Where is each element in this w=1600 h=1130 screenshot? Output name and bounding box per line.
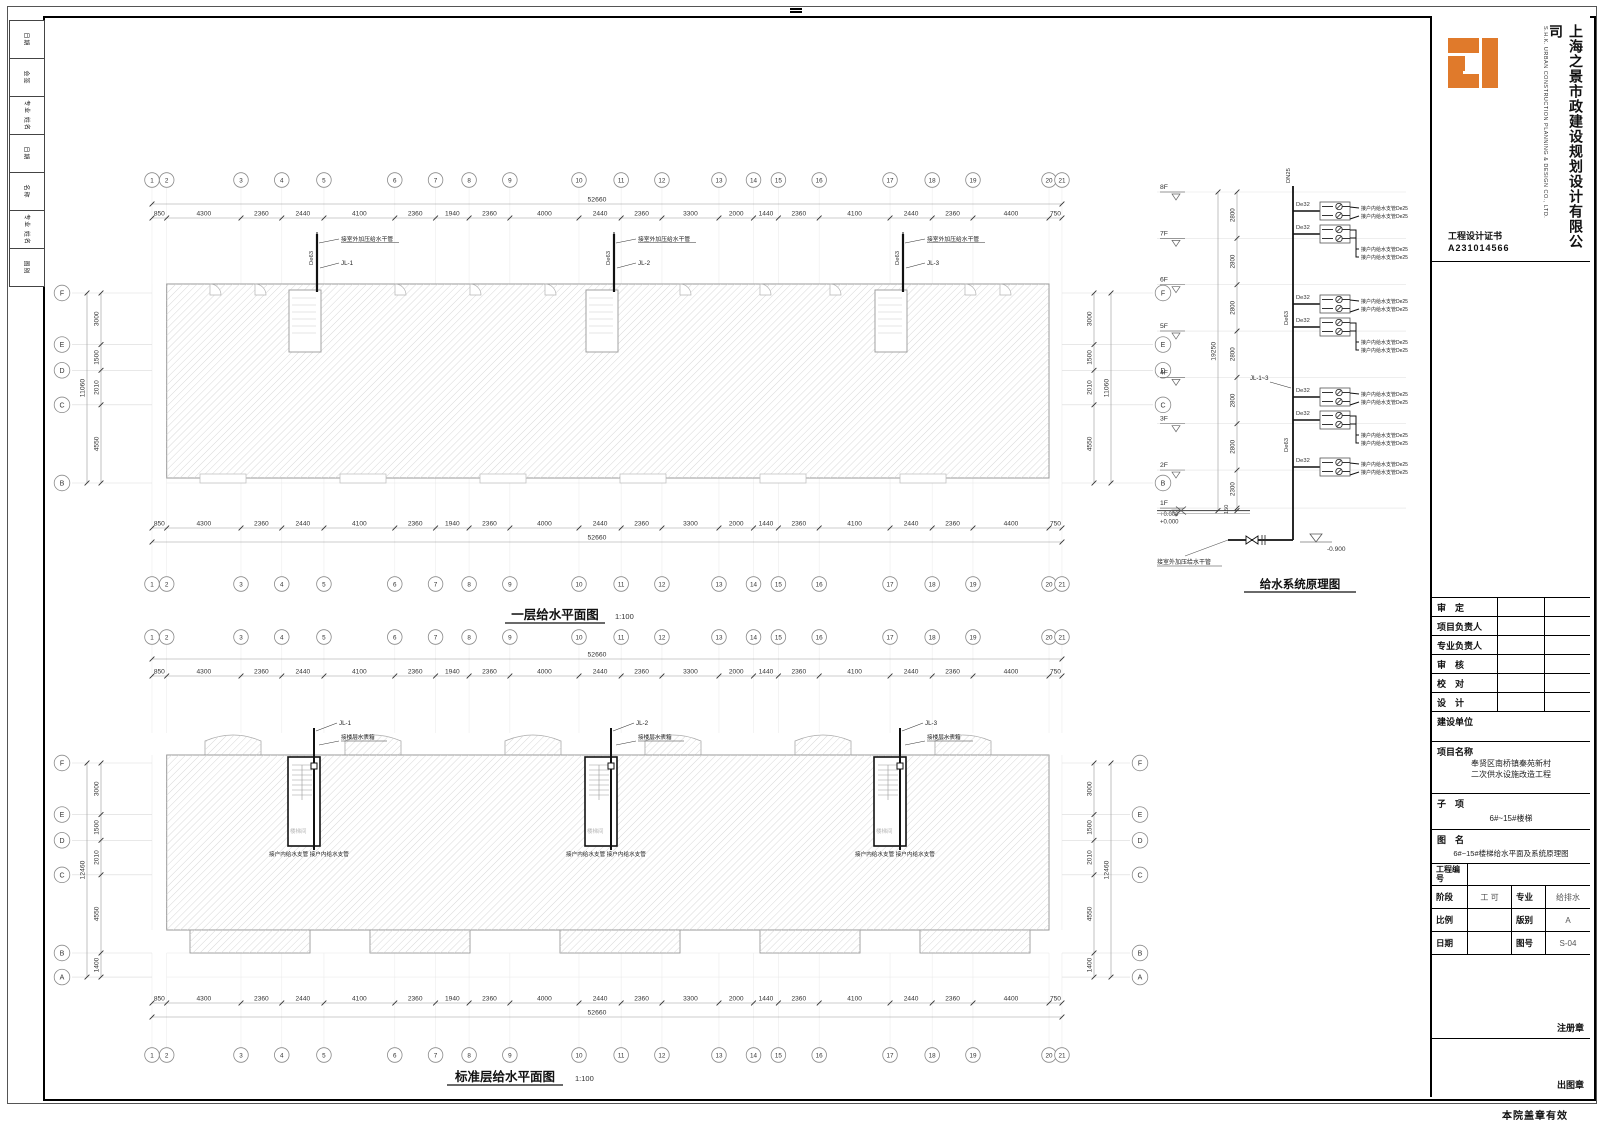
sign-row-name [1498,674,1545,692]
project-no-label: 工程编号 [1432,864,1468,885]
drawing-name-label: 图 名 [1432,830,1590,846]
sign-row: 审 核 [1432,655,1590,674]
cert-number: A231014566 [1448,243,1510,253]
sign-row-label: 审 核 [1432,655,1498,673]
sign-row-sig [1545,674,1590,692]
sign-row-sig [1545,598,1590,616]
sign-row-sig [1545,636,1590,654]
sign-row-sig [1545,655,1590,673]
figno-label: 图号 [1512,932,1546,954]
register-seal-label: 注册章 [1557,1021,1584,1034]
project-no-cell: 工程编号 [1432,864,1590,886]
signature-strip: 日期会签专业 姓名日期名称专业 姓名图别 [9,20,45,287]
signature-strip-cell: 名称 [10,173,44,211]
sign-row-name [1498,655,1545,673]
issue-seal-cell: 出图章 [1432,1039,1590,1095]
sign-row-label: 项目负责人 [1432,617,1498,635]
sign-row-label: 专业负责人 [1432,636,1498,654]
stage-label: 阶段 [1432,886,1468,908]
subitem-cell: 子 项 6#~15#楼梯 [1432,794,1590,830]
sign-row: 专业负责人 [1432,636,1590,655]
build-unit-label: 建设单位 [1432,712,1590,728]
date-label: 日期 [1432,932,1468,954]
scale-row: 比例 版别 A [1432,909,1590,932]
build-unit-cell: 建设单位 [1432,712,1590,742]
register-seal-cell: 注册章 [1432,955,1590,1039]
sign-row: 审 定 [1432,598,1590,617]
sign-row-name [1498,693,1545,711]
sign-row: 项目负责人 [1432,617,1590,636]
sheet-inner-border [43,16,1596,1101]
signature-strip-cell: 专业 姓名 [10,97,44,135]
company-logo [1448,38,1498,88]
drawing-name-cell: 图 名 6#~15#楼梯给水平面及系统原理图 [1432,830,1590,864]
subitem-value: 6#~15#楼梯 [1432,813,1590,824]
sign-row-sig [1545,617,1590,635]
signature-strip-cell: 日期 [10,135,44,173]
drawing-sheet: De63接室外加压给水干管JL-1De63接室外加压给水干管JL-2De63接室… [0,0,1600,1130]
validity-note: 本院盖章有效 [1502,1107,1568,1122]
scale-value [1468,909,1512,931]
signature-strip-cell: 日期 [10,21,44,59]
company-section: 上海之景市政建设规划设计有限公司 S.H.K. URBAN CONSTRUCTI… [1432,16,1590,262]
sign-row-sig [1545,693,1590,711]
sign-row: 校 对 [1432,674,1590,693]
issue-seal-label: 出图章 [1557,1078,1584,1091]
project-name-line2: 二次供水设施改造工程 [1432,769,1590,780]
project-name-cell: 项目名称 奉贤区南桥镇秦苑新村 二次供水设施改造工程 [1432,742,1590,794]
sign-row-name [1498,617,1545,635]
blank-section [1432,262,1590,598]
signature-strip-cell: 图别 [10,249,44,286]
fold-mark [790,8,802,15]
date-value [1468,932,1512,954]
sign-row-name [1498,598,1545,616]
project-name-line1: 奉贤区南桥镇秦苑新村 [1432,758,1590,769]
company-name: 上海之景市政建设规划设计有限公司 [1546,24,1586,256]
sign-row-name [1498,636,1545,654]
version-value: A [1546,909,1590,931]
company-name-en: S.H.K. URBAN CONSTRUCTION PLANNING & DES… [1542,26,1548,254]
discipline-value: 给排水 [1546,886,1590,908]
sign-row-label: 设 计 [1432,693,1498,711]
signature-strip-cell: 专业 姓名 [10,211,44,249]
stage-value: 工 可 [1468,886,1512,908]
scale-label: 比例 [1432,909,1468,931]
title-block: 上海之景市政建设规划设计有限公司 S.H.K. URBAN CONSTRUCTI… [1430,16,1590,1097]
project-label: 项目名称 [1432,742,1590,758]
subitem-label: 子 项 [1432,794,1590,810]
sign-row-label: 校 对 [1432,674,1498,692]
sign-row-label: 审 定 [1432,598,1498,616]
cert-label: 工程设计证书 [1448,229,1502,242]
date-row: 日期 图号 S-04 [1432,932,1590,955]
stage-row: 阶段 工 可 专业 给排水 [1432,886,1590,909]
version-label: 版别 [1512,909,1546,931]
discipline-label: 专业 [1512,886,1546,908]
figno-value: S-04 [1546,932,1590,954]
signature-strip-cell: 会签 [10,59,44,97]
sign-row: 设 计 [1432,693,1590,712]
drawing-name: 6#~15#楼梯给水平面及系统原理图 [1432,848,1590,859]
